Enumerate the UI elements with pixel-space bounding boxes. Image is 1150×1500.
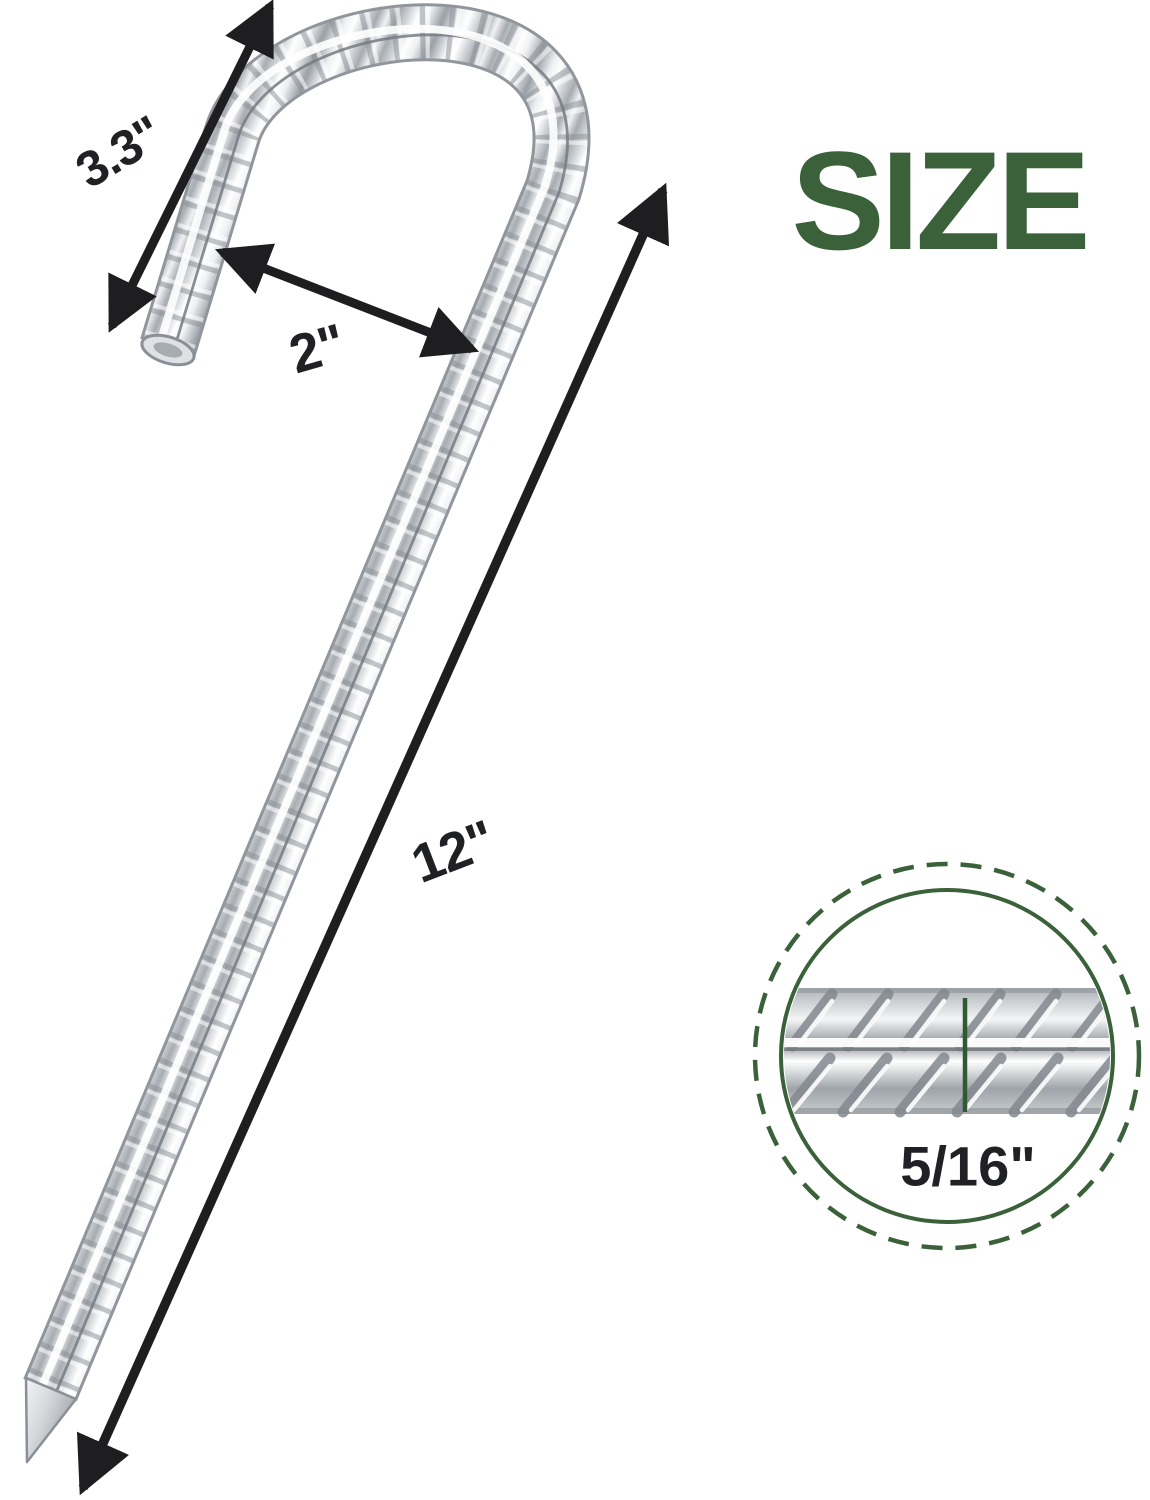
size-diagram: 3.3" 2" 12" SIZE 5/16" xyxy=(0,0,1150,1500)
stake-length-arrow xyxy=(83,190,663,1488)
rebar-stake-illustration xyxy=(26,29,567,1462)
closeup-seam-shadow xyxy=(780,1048,1116,1051)
diameter-label: 5/16" xyxy=(900,1134,1036,1199)
hook-opening-arrow xyxy=(222,252,472,349)
page-title: SIZE xyxy=(791,120,1086,282)
detail-rebar-closeup xyxy=(730,988,1150,1114)
closeup-seam-highlight xyxy=(780,1038,1116,1047)
